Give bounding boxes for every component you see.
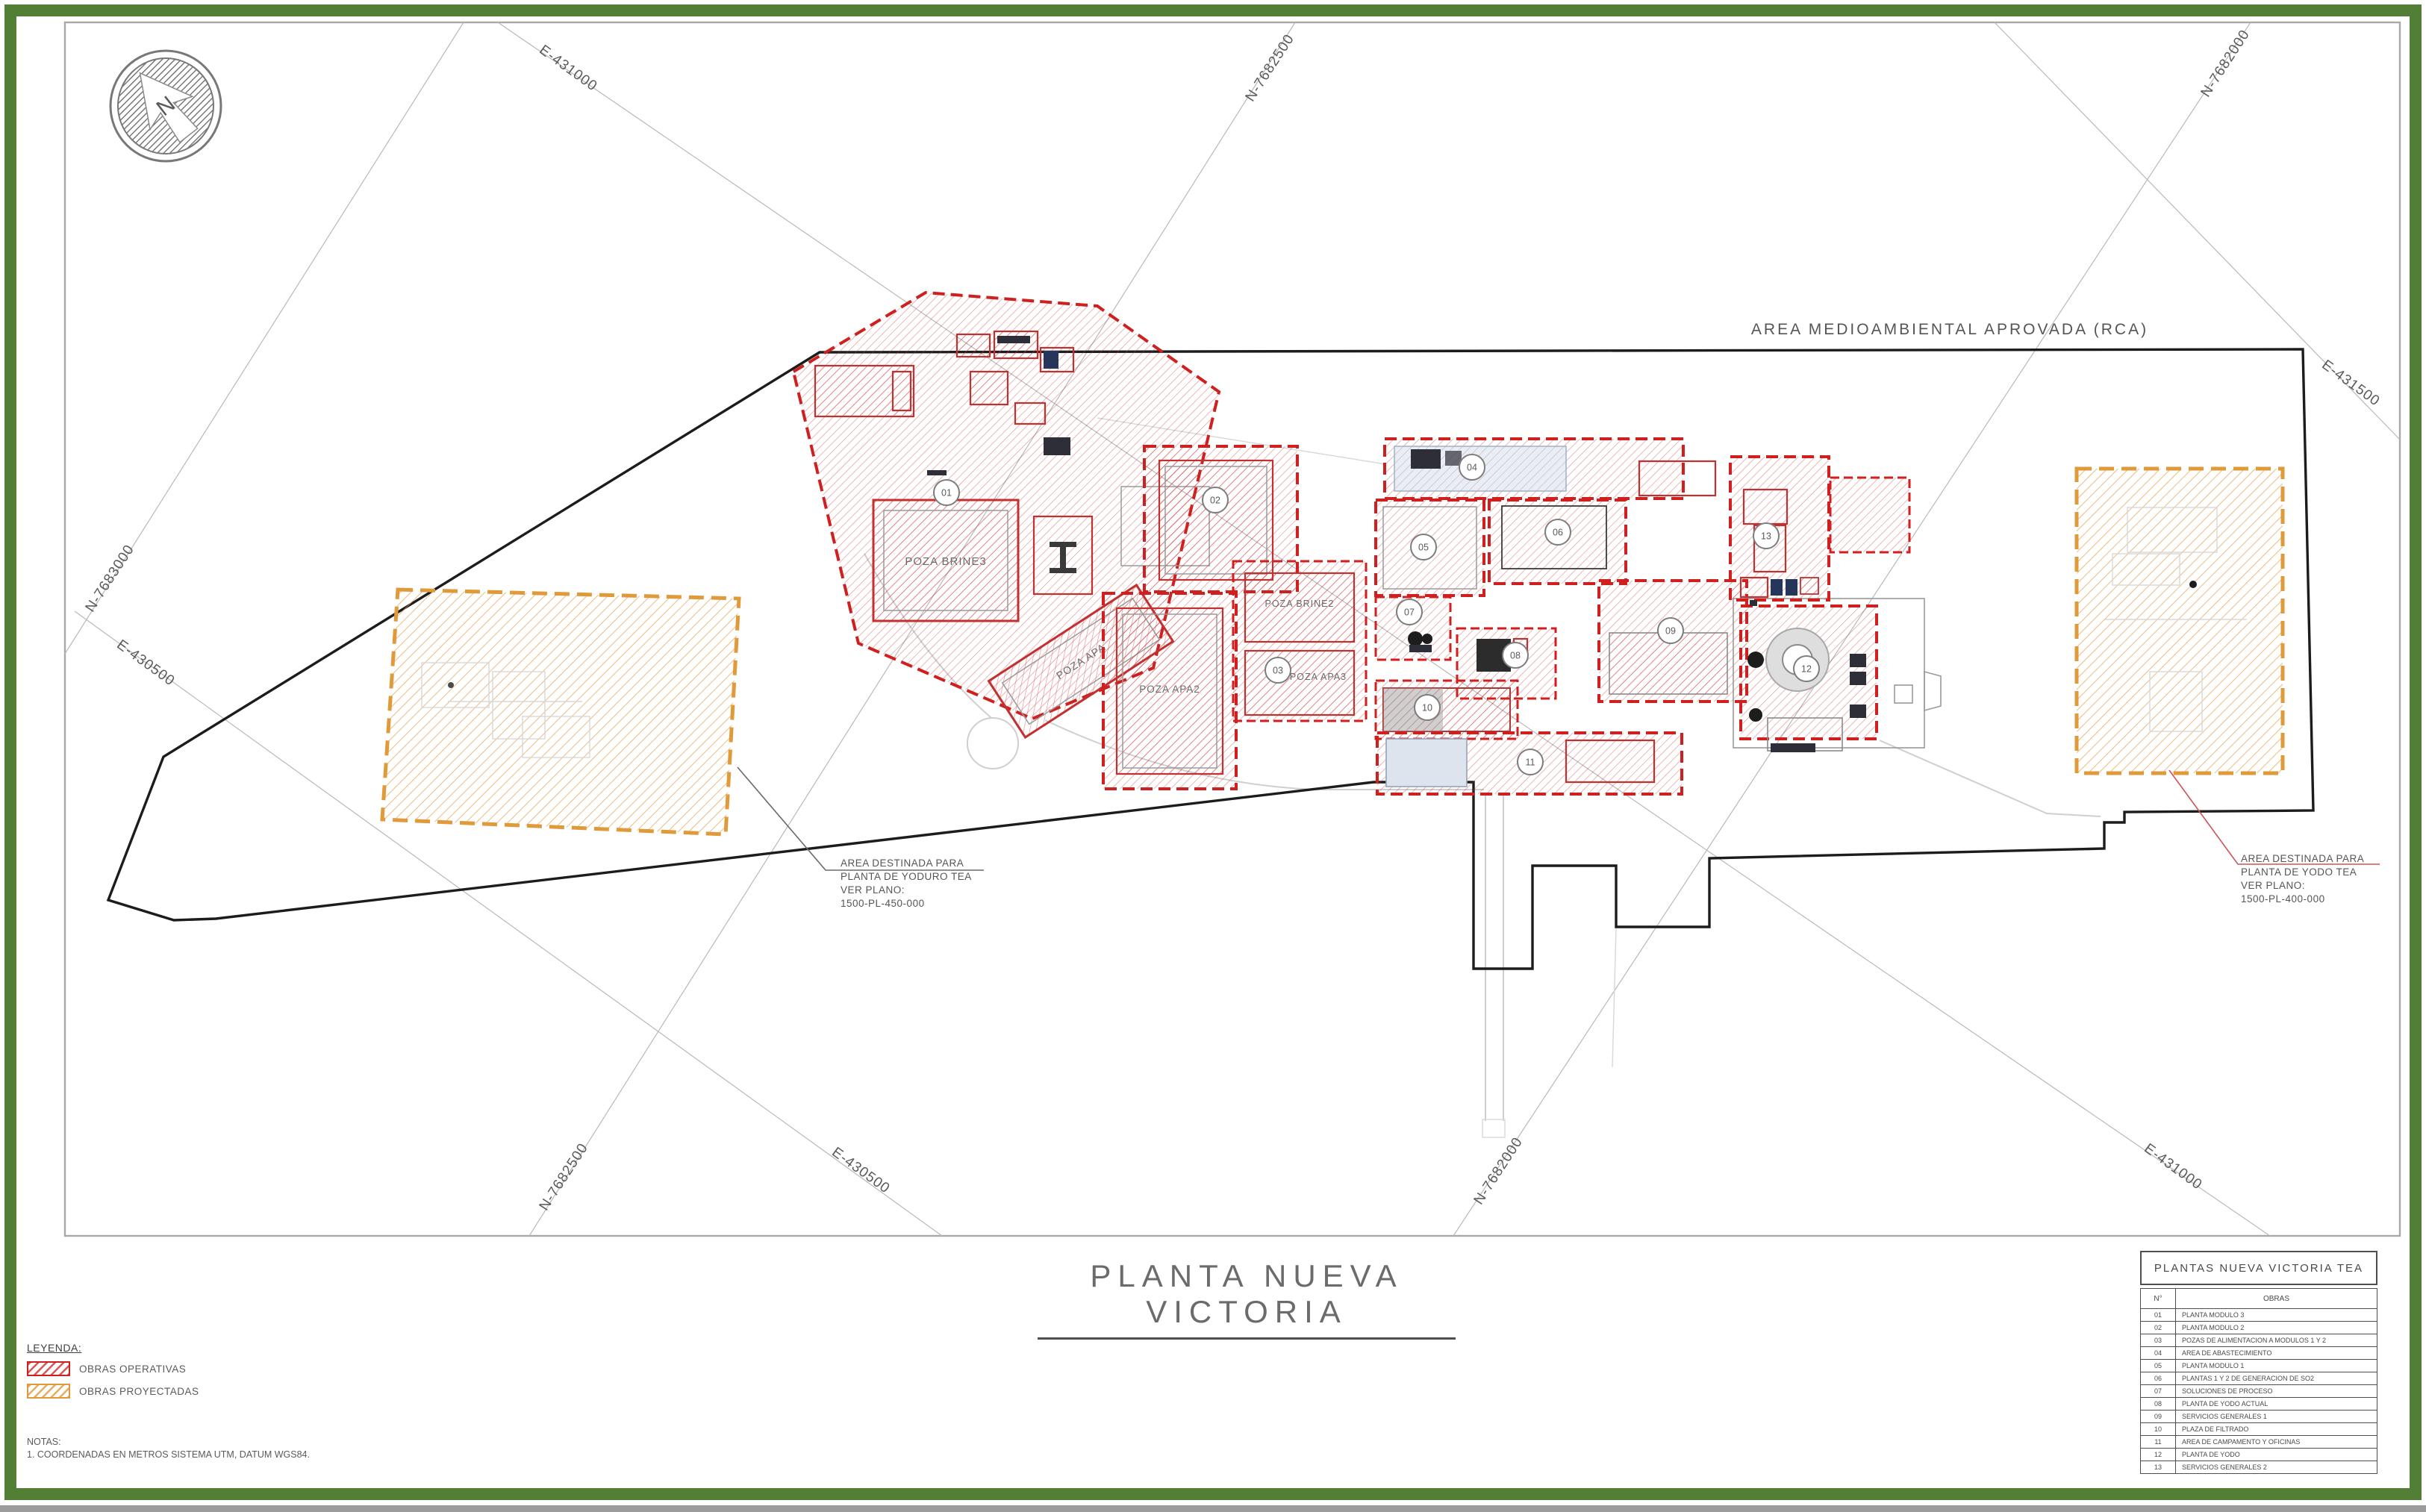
page-bottom-edge bbox=[0, 1505, 2426, 1512]
sheet-green-frame bbox=[4, 4, 2422, 1500]
plan-sheet: E-431000 N-7682500 N-7682000 E-431500 N-… bbox=[0, 0, 2426, 1512]
